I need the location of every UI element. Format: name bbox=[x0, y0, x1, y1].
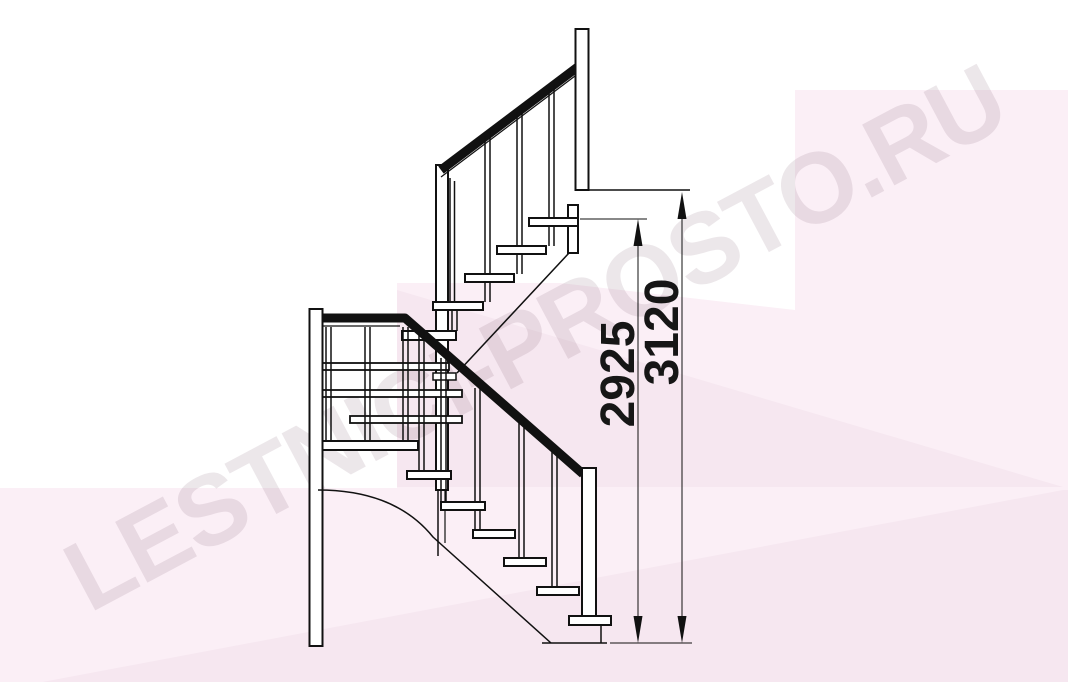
top-newel-post bbox=[576, 29, 589, 190]
winder-tread-edge bbox=[350, 416, 462, 423]
tread bbox=[433, 302, 483, 310]
dimension-value-3120: 3120 bbox=[636, 279, 689, 386]
winder-rail bbox=[322, 363, 449, 370]
winder-tread-edge bbox=[433, 373, 456, 380]
tread bbox=[504, 558, 546, 566]
staircase-elevation-canvas: LESTNICI-PROSTO.RU bbox=[0, 0, 1068, 682]
tread bbox=[473, 530, 515, 538]
bottom-newel-post bbox=[582, 468, 596, 618]
tread bbox=[441, 502, 485, 510]
tread bbox=[537, 587, 579, 595]
tread bbox=[465, 274, 514, 282]
landing-newel-post bbox=[310, 309, 323, 646]
tread bbox=[407, 471, 451, 479]
staircase-drawing: LESTNICI-PROSTO.RU bbox=[0, 0, 1068, 682]
tread bbox=[497, 246, 546, 254]
tread bbox=[529, 218, 578, 226]
top-riser-board bbox=[568, 205, 578, 253]
landing-board bbox=[322, 441, 418, 450]
bottom-tread bbox=[569, 616, 611, 625]
